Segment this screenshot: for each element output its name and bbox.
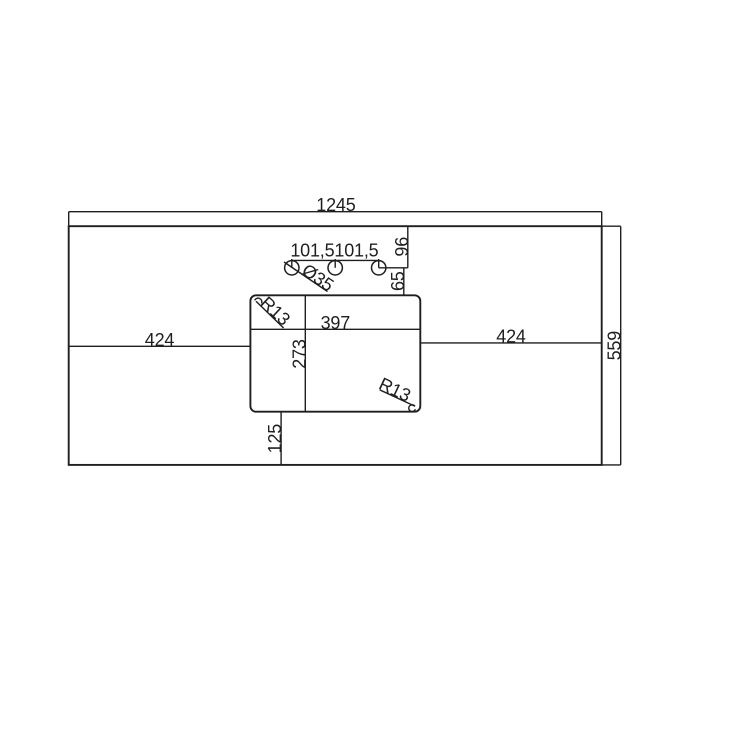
svg-text:65: 65	[388, 271, 408, 291]
svg-text:1245: 1245	[316, 195, 355, 215]
svg-text:397: 397	[321, 313, 351, 333]
svg-text:424: 424	[496, 326, 526, 346]
svg-text:273: 273	[289, 339, 309, 369]
svg-text:125: 125	[265, 424, 285, 454]
svg-text:101,5101,5: 101,5101,5	[290, 240, 378, 260]
svg-text:424: 424	[145, 330, 175, 350]
svg-text:559: 559	[605, 331, 625, 361]
svg-text:96: 96	[392, 237, 412, 257]
